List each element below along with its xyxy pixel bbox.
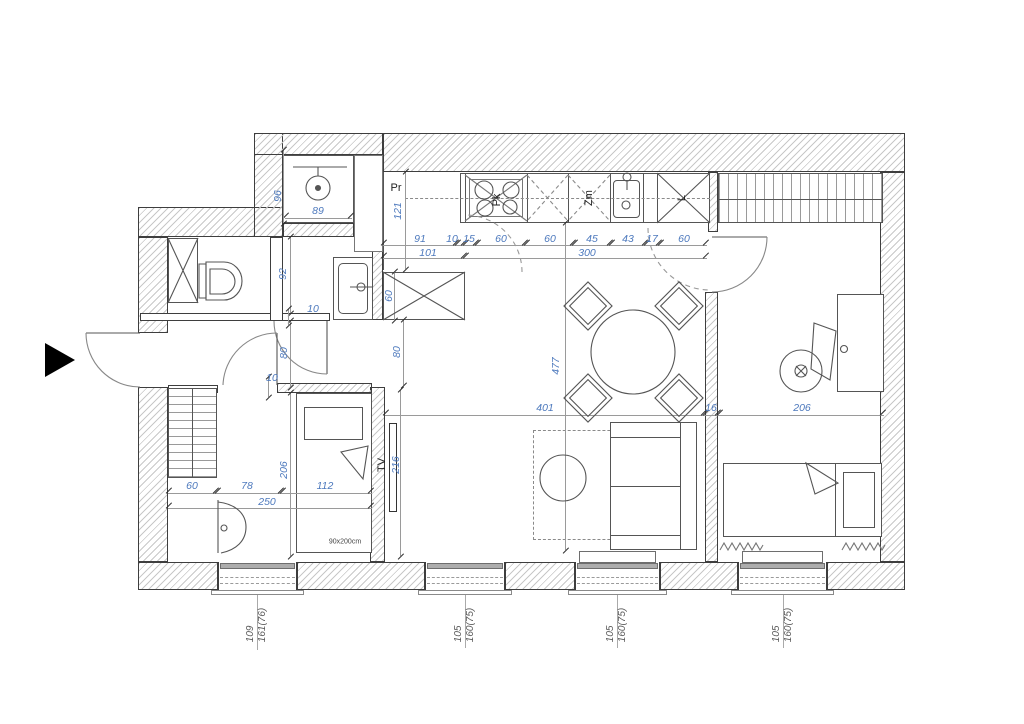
window-4-label: 105160(75) <box>771 608 795 642</box>
window-4-label-height: 160(75) <box>783 608 795 642</box>
shower-head-dot <box>316 186 321 191</box>
dim-k-91: 91 <box>414 233 426 245</box>
window-1-label-width: 109 <box>245 608 257 642</box>
dim-wall-10a: 10 <box>307 303 319 315</box>
dim-k-60b: 60 <box>544 233 556 245</box>
wc-shaft-cross <box>168 238 198 303</box>
dim-washer-depth: 121 <box>392 202 404 220</box>
dim-bed-206: 206 <box>278 461 290 479</box>
dim-k-60c: 60 <box>678 233 690 245</box>
window-1-label: 109161(76) <box>245 608 269 642</box>
window-3-label-width: 105 <box>605 608 617 642</box>
closet-door-curve <box>218 502 246 553</box>
window-1-label-height: 161(76) <box>257 608 269 642</box>
dim-living-401: 401 <box>536 402 554 414</box>
dim-room-206: 206 <box>793 402 811 414</box>
window-4-label-width: 105 <box>771 608 783 642</box>
kitchen-faucet <box>623 173 631 181</box>
dining-table <box>591 310 675 394</box>
dim-door-80a: 80 <box>278 347 290 359</box>
label-fridge: L <box>676 195 688 201</box>
coffee-table <box>540 455 586 501</box>
dim-k-15: 15 <box>463 233 475 245</box>
symbol-overlay <box>0 0 1024 724</box>
label-dishwasher: Zm <box>583 190 595 206</box>
dim-k-17: 17 <box>646 233 658 245</box>
dim-left-60: 60 <box>186 480 198 492</box>
label-hob: Pk <box>491 194 503 207</box>
dim-tvwall-216: 216 <box>390 456 402 474</box>
burner-4 <box>503 200 517 214</box>
desk-chair-cross <box>796 366 806 376</box>
dim-k-60a: 60 <box>495 233 507 245</box>
dim-shower-height: 96 <box>272 190 284 202</box>
bedroom-door-arc <box>712 237 767 292</box>
dim-living-477: 477 <box>550 357 562 375</box>
desk-knob <box>841 346 848 353</box>
entrance-door-arc <box>86 333 140 387</box>
kitchen-sink-drain <box>622 201 630 209</box>
dim-k-300: 300 <box>578 247 596 259</box>
toilet-tank <box>199 264 206 298</box>
window-2-label-height: 160(75) <box>465 608 477 642</box>
upper-cabinet-cross-1 <box>527 175 568 221</box>
window-2-label-width: 105 <box>453 608 465 642</box>
dim-shower-width: 89 <box>312 205 324 217</box>
dim-wall-16: 16 <box>705 402 717 414</box>
dim-k-43: 43 <box>622 233 634 245</box>
bed-right-fold <box>806 463 838 494</box>
burner-2 <box>503 182 519 198</box>
dim-left-112: 112 <box>317 480 334 492</box>
dim-wc-depth: 92 <box>277 268 289 280</box>
bed-left-fold <box>341 446 368 479</box>
radiator-zigzag-2 <box>842 543 885 550</box>
shower-rail <box>293 167 347 176</box>
window-3-label-height: 160(75) <box>617 608 629 642</box>
label-bed-size: 90x200cm <box>329 539 361 546</box>
dim-left-250: 250 <box>258 496 276 508</box>
closet-door-knob <box>221 525 227 531</box>
floor-plan-canvas: 109161(76)105160(75)105160(75)105160(75)… <box>0 0 1024 724</box>
dim-left-78: 78 <box>241 480 253 492</box>
label-tv: TV <box>376 458 388 472</box>
dim-cabinet-60: 60 <box>383 290 395 302</box>
toilet-seat <box>210 269 235 294</box>
window-2-label: 105160(75) <box>453 608 477 642</box>
desk-chair-back <box>811 323 836 380</box>
radiator-zigzag-1 <box>720 543 763 550</box>
dim-door-80b: 80 <box>391 346 403 358</box>
dim-k-10: 10 <box>446 233 458 245</box>
entrance-arrow-icon <box>45 343 75 377</box>
window-3-label: 105160(75) <box>605 608 629 642</box>
dining-chairs <box>564 282 703 422</box>
dim-k-101: 101 <box>419 247 437 259</box>
hall-cabinet-cross <box>383 272 465 320</box>
dim-k-45: 45 <box>586 233 598 245</box>
label-washing-machine: Pr <box>391 182 402 194</box>
dim-wall-10b: 10 <box>266 372 278 384</box>
